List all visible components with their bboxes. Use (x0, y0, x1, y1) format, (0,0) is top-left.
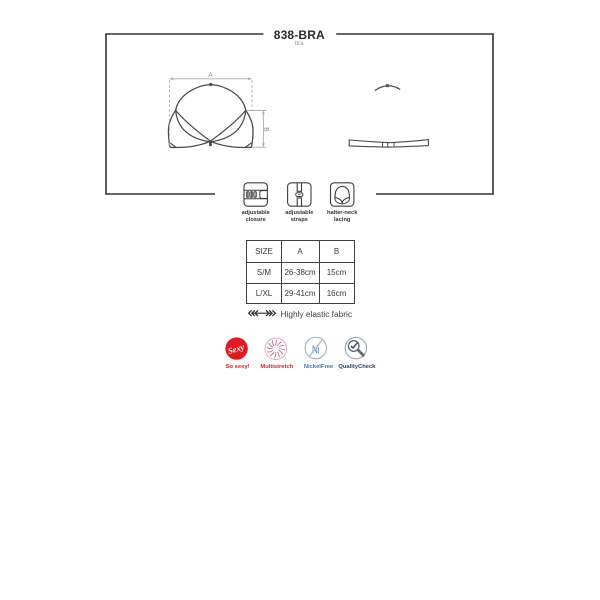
svg-text:A: A (208, 72, 213, 79)
svg-text:Ni: Ni (312, 344, 320, 356)
svg-text:B: B (263, 127, 270, 132)
